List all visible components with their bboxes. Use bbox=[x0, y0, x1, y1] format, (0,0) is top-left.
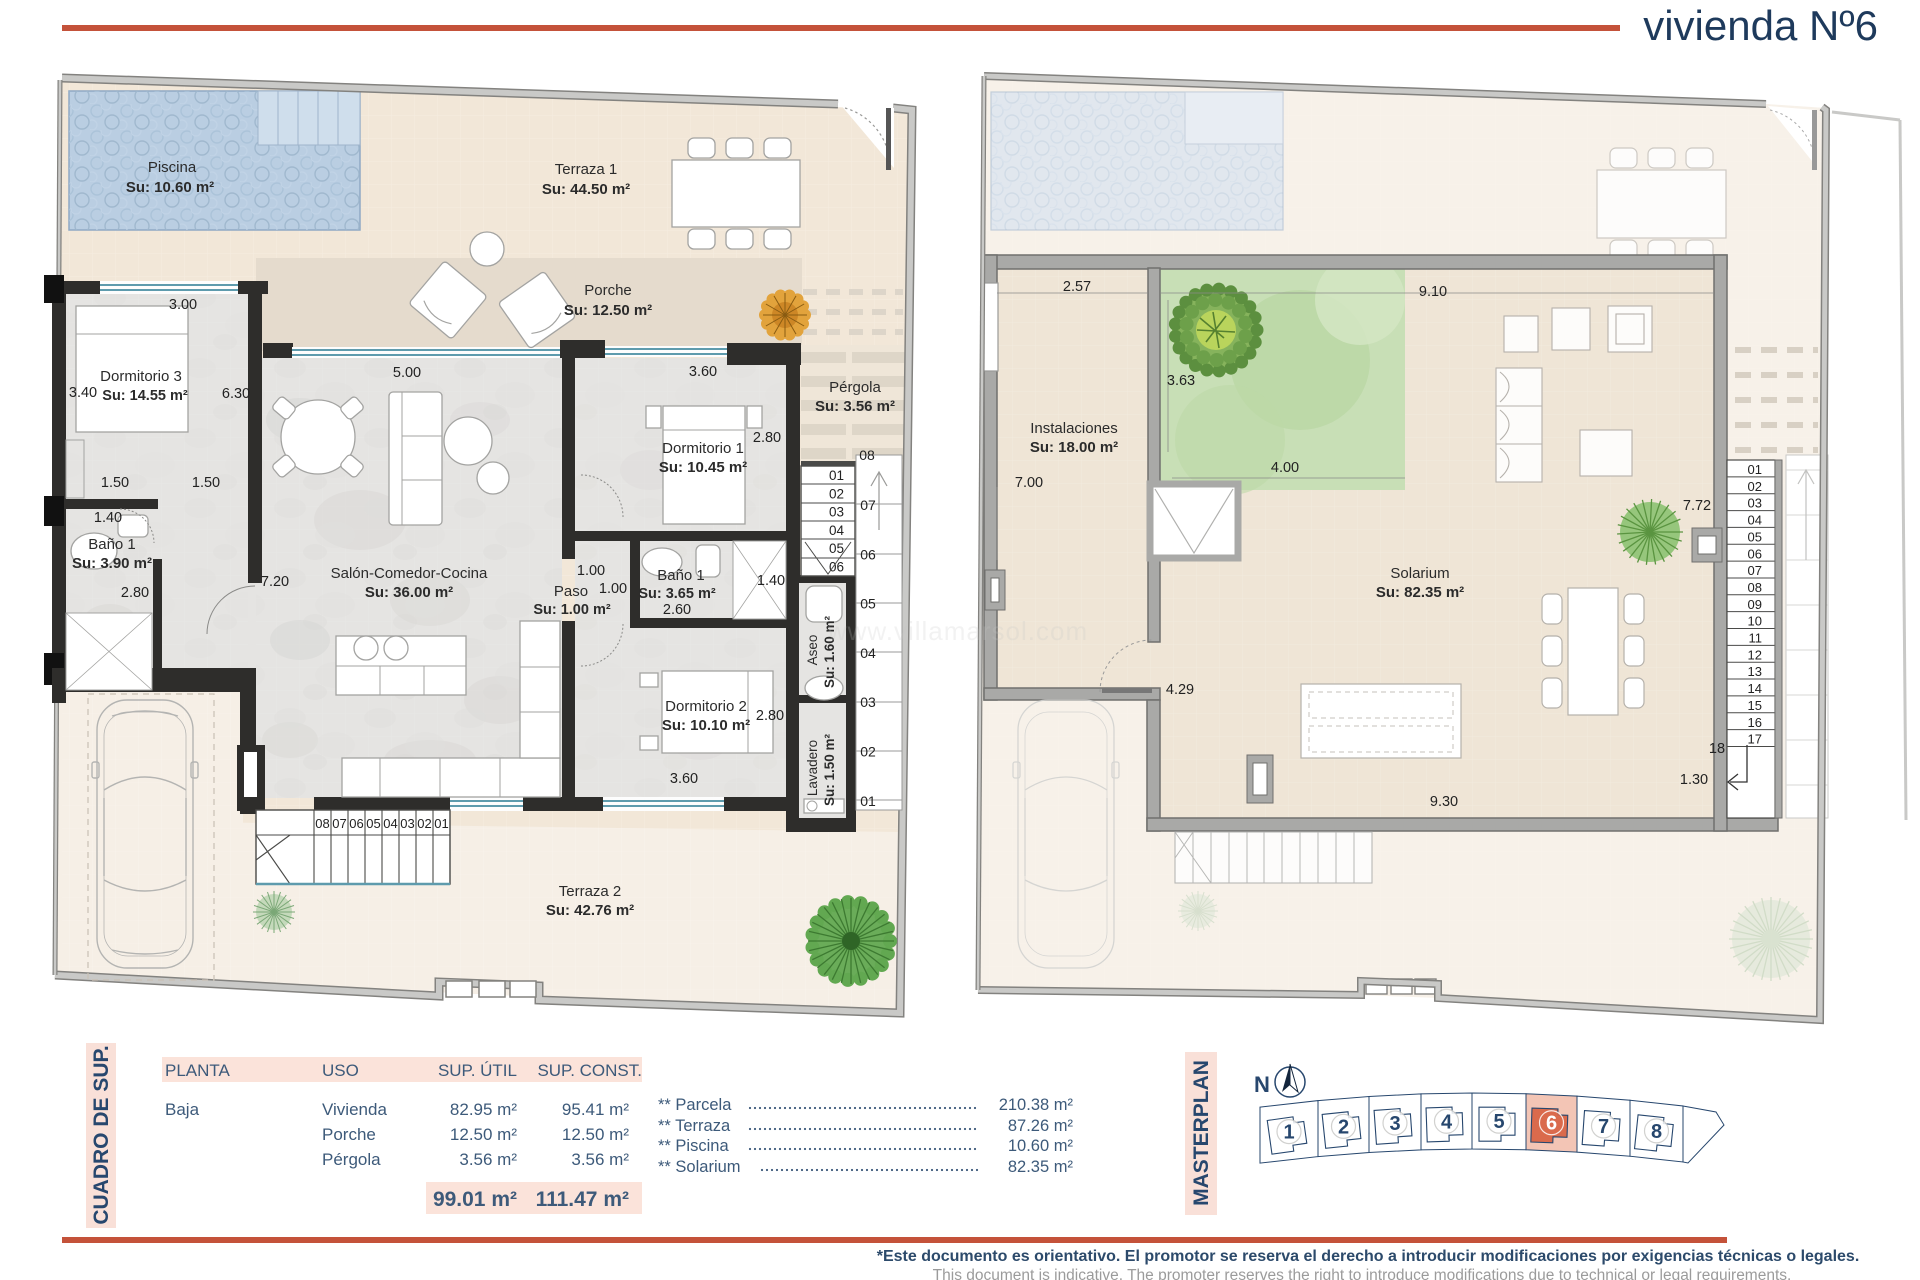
svg-text:Su: 18.00 m²: Su: 18.00 m² bbox=[1030, 439, 1118, 456]
svg-text:02: 02 bbox=[829, 486, 844, 501]
svg-text:USO: USO bbox=[322, 1061, 359, 1080]
svg-text:12.50 m²: 12.50 m² bbox=[450, 1125, 517, 1144]
svg-text:87.26 m²: 87.26 m² bbox=[1008, 1117, 1074, 1135]
svg-text:** Piscina: ** Piscina bbox=[658, 1137, 729, 1155]
svg-text:7: 7 bbox=[1598, 1116, 1609, 1138]
svg-text:16: 16 bbox=[1748, 715, 1762, 730]
svg-text:03: 03 bbox=[1748, 496, 1762, 511]
svg-text:Dormitorio 3: Dormitorio 3 bbox=[100, 368, 182, 385]
svg-text:2.80: 2.80 bbox=[756, 708, 784, 724]
svg-text:Pérgola: Pérgola bbox=[829, 379, 881, 396]
svg-text:This document is indicative. T: This document is indicative. The promote… bbox=[933, 1267, 1792, 1280]
svg-text:6.30: 6.30 bbox=[222, 386, 250, 402]
svg-text:9.30: 9.30 bbox=[1430, 794, 1458, 810]
svg-text:06: 06 bbox=[1748, 546, 1762, 561]
svg-text:Su: 36.00 m²: Su: 36.00 m² bbox=[365, 584, 453, 601]
svg-text:1.50: 1.50 bbox=[101, 475, 129, 491]
svg-text:2.80: 2.80 bbox=[753, 430, 781, 446]
svg-text:Su: 1.00 m²: Su: 1.00 m² bbox=[533, 602, 611, 618]
svg-text:Su: 42.76 m²: Su: 42.76 m² bbox=[546, 902, 634, 919]
svg-text:04: 04 bbox=[829, 523, 845, 538]
svg-text:Baja: Baja bbox=[165, 1100, 200, 1119]
svg-text:1.50: 1.50 bbox=[192, 475, 220, 491]
svg-text:1.30: 1.30 bbox=[1680, 772, 1708, 788]
svg-text:3: 3 bbox=[1389, 1113, 1400, 1135]
svg-text:N: N bbox=[1254, 1072, 1270, 1097]
svg-text:06: 06 bbox=[349, 816, 363, 831]
svg-text:Lavadero: Lavadero bbox=[805, 740, 820, 796]
svg-text:2.57: 2.57 bbox=[1063, 279, 1091, 295]
svg-text:01: 01 bbox=[434, 816, 448, 831]
svg-text:3.56 m²: 3.56 m² bbox=[459, 1150, 517, 1169]
svg-text:12.50 m²: 12.50 m² bbox=[562, 1125, 629, 1144]
svg-text:Baño 1: Baño 1 bbox=[657, 567, 705, 584]
svg-text:13: 13 bbox=[1748, 664, 1762, 679]
svg-text:Su: 3.56 m²: Su: 3.56 m² bbox=[815, 398, 895, 415]
svg-text:1.40: 1.40 bbox=[757, 573, 785, 589]
svg-text:01: 01 bbox=[1748, 462, 1762, 477]
svg-text:2.60: 2.60 bbox=[663, 602, 691, 618]
svg-text:8: 8 bbox=[1651, 1121, 1662, 1143]
svg-text:Terraza 1: Terraza 1 bbox=[555, 161, 618, 178]
svg-text:3.00: 3.00 bbox=[169, 297, 197, 313]
svg-text:7.00: 7.00 bbox=[1015, 475, 1043, 491]
svg-text:3.40: 3.40 bbox=[69, 385, 97, 401]
svg-text:vivienda Nº6: vivienda Nº6 bbox=[1643, 2, 1878, 49]
svg-text:Vivienda: Vivienda bbox=[322, 1100, 387, 1119]
svg-text:4.29: 4.29 bbox=[1166, 682, 1194, 698]
svg-text:05: 05 bbox=[1748, 529, 1762, 544]
svg-text:Su: 1.50 m²: Su: 1.50 m² bbox=[822, 733, 837, 806]
svg-text:Su: 12.50 m²: Su: 12.50 m² bbox=[564, 302, 652, 319]
svg-text:05: 05 bbox=[860, 596, 876, 612]
svg-text:10: 10 bbox=[1748, 614, 1762, 629]
svg-text:SUP. CONST.: SUP. CONST. bbox=[537, 1061, 642, 1080]
svg-text:07: 07 bbox=[860, 497, 876, 513]
svg-text:5: 5 bbox=[1493, 1111, 1504, 1133]
svg-text:www.villamarsol.com: www.villamarsol.com bbox=[827, 616, 1088, 646]
svg-text:05: 05 bbox=[366, 816, 380, 831]
svg-text:Su: 10.45 m²: Su: 10.45 m² bbox=[659, 459, 747, 476]
svg-text:111.47 m²: 111.47 m² bbox=[536, 1188, 629, 1211]
svg-text:5.00: 5.00 bbox=[393, 365, 421, 381]
svg-text:15: 15 bbox=[1748, 698, 1762, 713]
svg-text:95.41 m²: 95.41 m² bbox=[562, 1100, 629, 1119]
svg-text:05: 05 bbox=[829, 541, 844, 556]
svg-text:1.00: 1.00 bbox=[577, 563, 605, 579]
svg-text:6: 6 bbox=[1546, 1113, 1557, 1135]
svg-text:99.01 m²: 99.01 m² bbox=[433, 1188, 517, 1211]
svg-text:2.80: 2.80 bbox=[121, 585, 149, 601]
svg-text:14: 14 bbox=[1748, 681, 1762, 696]
svg-text:** Parcela: ** Parcela bbox=[658, 1096, 732, 1114]
svg-text:Su: 14.55 m²: Su: 14.55 m² bbox=[102, 388, 188, 404]
svg-text:Solarium: Solarium bbox=[1390, 565, 1449, 582]
svg-text:04: 04 bbox=[1748, 513, 1762, 528]
svg-text:Aseo: Aseo bbox=[805, 635, 820, 666]
svg-text:01: 01 bbox=[829, 468, 844, 483]
svg-text:82.35 m²: 82.35 m² bbox=[1008, 1158, 1074, 1176]
svg-text:Su: 44.50 m²: Su: 44.50 m² bbox=[542, 181, 630, 198]
svg-text:Su: 82.35 m²: Su: 82.35 m² bbox=[1376, 584, 1464, 601]
svg-text:Piscina: Piscina bbox=[148, 159, 197, 176]
svg-text:08: 08 bbox=[1748, 580, 1762, 595]
svg-text:02: 02 bbox=[1748, 479, 1762, 494]
svg-text:4.00: 4.00 bbox=[1271, 460, 1299, 476]
svg-text:9.10: 9.10 bbox=[1419, 284, 1447, 300]
svg-text:03: 03 bbox=[400, 816, 414, 831]
svg-text:** Terraza: ** Terraza bbox=[658, 1117, 731, 1135]
svg-text:82.95 m²: 82.95 m² bbox=[450, 1100, 517, 1119]
svg-text:1.40: 1.40 bbox=[94, 510, 122, 526]
svg-text:Porche: Porche bbox=[322, 1125, 376, 1144]
svg-text:3.56 m²: 3.56 m² bbox=[571, 1150, 629, 1169]
svg-text:SUP. ÚTIL: SUP. ÚTIL bbox=[438, 1061, 517, 1080]
svg-text:1.00: 1.00 bbox=[599, 581, 627, 597]
svg-text:03: 03 bbox=[860, 694, 876, 710]
svg-text:MASTERPLAN: MASTERPLAN bbox=[1190, 1060, 1213, 1206]
svg-text:07: 07 bbox=[1748, 563, 1762, 578]
svg-text:Dormitorio 1: Dormitorio 1 bbox=[662, 440, 744, 457]
svg-text:Su: 10.60 m²: Su: 10.60 m² bbox=[126, 179, 214, 196]
svg-text:3.63: 3.63 bbox=[1167, 373, 1195, 389]
svg-text:17: 17 bbox=[1748, 732, 1762, 747]
svg-text:PLANTA: PLANTA bbox=[165, 1061, 231, 1080]
svg-text:Pérgola: Pérgola bbox=[322, 1150, 381, 1169]
svg-text:4: 4 bbox=[1441, 1111, 1453, 1133]
svg-text:210.38 m²: 210.38 m² bbox=[999, 1096, 1074, 1114]
svg-text:02: 02 bbox=[417, 816, 431, 831]
svg-text:Su: 3.65 m²: Su: 3.65 m² bbox=[638, 586, 716, 602]
svg-text:01: 01 bbox=[860, 793, 876, 809]
svg-text:08: 08 bbox=[859, 447, 875, 463]
svg-text:09: 09 bbox=[1748, 597, 1762, 612]
svg-text:1: 1 bbox=[1283, 1122, 1294, 1144]
svg-text:7.20: 7.20 bbox=[261, 574, 289, 590]
svg-text:11: 11 bbox=[1749, 631, 1763, 646]
svg-text:3.60: 3.60 bbox=[670, 771, 698, 787]
svg-text:Baño 1: Baño 1 bbox=[88, 536, 136, 553]
svg-text:Salón-Comedor-Cocina: Salón-Comedor-Cocina bbox=[331, 565, 488, 582]
svg-text:07: 07 bbox=[332, 816, 346, 831]
svg-text:12: 12 bbox=[1748, 647, 1762, 662]
svg-text:03: 03 bbox=[829, 505, 844, 520]
svg-text:2: 2 bbox=[1338, 1116, 1349, 1138]
svg-text:Terraza 2: Terraza 2 bbox=[559, 883, 622, 900]
svg-text:Paso: Paso bbox=[554, 583, 588, 600]
svg-text:7.72: 7.72 bbox=[1683, 498, 1711, 514]
svg-text:** Solarium: ** Solarium bbox=[658, 1158, 741, 1176]
svg-text:10.60 m²: 10.60 m² bbox=[1008, 1137, 1074, 1155]
svg-text:Su: 10.10 m²: Su: 10.10 m² bbox=[662, 717, 750, 734]
svg-text:04: 04 bbox=[383, 816, 397, 831]
svg-text:3.60: 3.60 bbox=[689, 364, 717, 380]
svg-text:CUADRO DE SUP.: CUADRO DE SUP. bbox=[90, 1045, 113, 1224]
svg-text:04: 04 bbox=[860, 645, 876, 661]
svg-text:*Este documento es orientativo: *Este documento es orientativo. El promo… bbox=[877, 1248, 1860, 1265]
svg-text:Porche: Porche bbox=[584, 282, 632, 299]
svg-text:18: 18 bbox=[1709, 741, 1725, 757]
svg-text:Dormitorio 2: Dormitorio 2 bbox=[665, 698, 747, 715]
svg-text:Instalaciones: Instalaciones bbox=[1030, 420, 1118, 437]
svg-text:06: 06 bbox=[860, 546, 876, 562]
svg-text:02: 02 bbox=[860, 744, 876, 760]
svg-text:Su: 3.90 m²: Su: 3.90 m² bbox=[72, 555, 152, 572]
svg-text:08: 08 bbox=[315, 816, 329, 831]
